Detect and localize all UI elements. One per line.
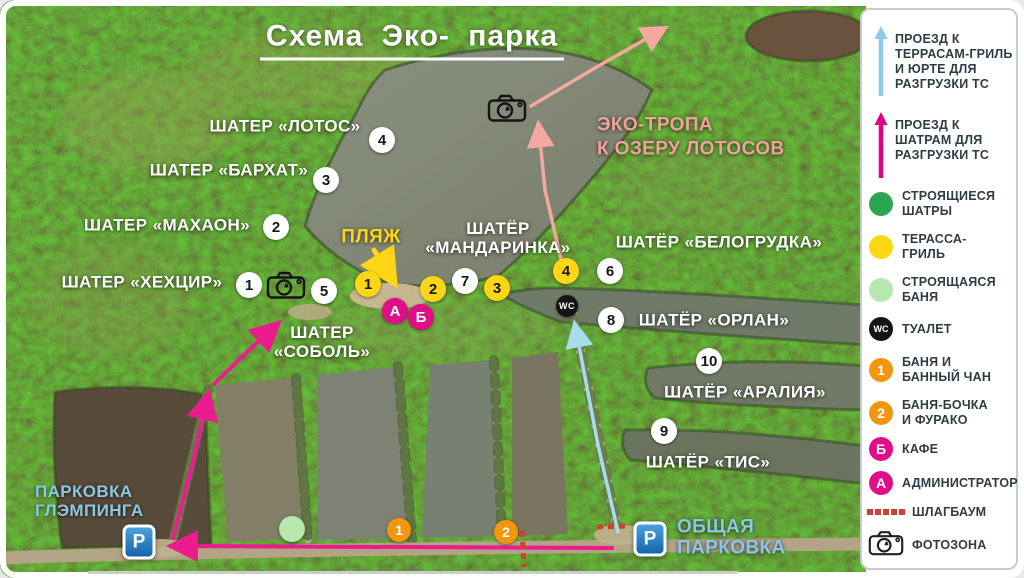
map-marker-yellow-3[interactable]: 3 [484,275,510,301]
map-marker-greenlight[interactable] [279,516,305,542]
parking-icon[interactable]: P [634,522,667,557]
camera-photozone-icon[interactable] [487,93,527,128]
legend-administrator-icon: А [869,471,893,495]
map-marker-magenta-А[interactable]: А [382,298,408,324]
bottom-divider [88,571,738,574]
map-marker-yellow-4[interactable]: 4 [553,258,579,284]
map-marker-white-10[interactable]: 10 [696,348,722,374]
map-label-lotos: ШАТЕР «ЛОТОС» [209,116,360,135]
legend-label-photo-zone: ФОТОЗОНА [912,538,986,553]
legend-barrel-sauna-furako-icon: 2 [869,401,893,425]
map-marker-white-7[interactable]: 7 [452,268,478,294]
legend-arrow-icon-drive-to-grill-terraces [874,26,888,101]
map-marker-white-4[interactable]: 4 [369,127,395,153]
legend-arrow-icon-drive-to-tents [874,112,888,183]
map-marker-orange-1[interactable]: 1 [387,518,411,542]
legend-item-administrator: ААДМИНИСТРАТОР [862,471,1016,495]
legend-grill-terrace-icon [869,235,893,259]
legend-label-barrel-sauna-furako: БАНЯ-БОЧКАИ ФУРАКО [902,398,988,428]
legend-sauna-and-tub-icon: 1 [869,358,893,382]
map-label-glamping-parking: ПАРКОВКАГЛЭМПИНГА [35,482,144,520]
legend-label-tents-under-construction: СТРОЯЩИЕСЯШАТРЫ [902,189,995,219]
legend-label-sauna-and-tub: БАНЯ ИБАННЫЙ ЧАН [902,355,991,385]
map-marker-white-3[interactable]: 3 [313,167,339,193]
map-label-orlan: ШАТЁР «ОРЛАН» [639,310,789,329]
map-marker-yellow-1[interactable]: 1 [355,271,381,297]
map-label-belogrudka: ШАТЁР «БЕЛОГРУДКА» [616,232,822,251]
camera-icon [868,529,904,561]
barrier-dash-icon [867,503,905,521]
legend-label-drive-to-tents: ПРОЕЗД КШАТРАМ ДЛЯРАЗГРУЗКИ ТС [895,118,989,163]
map-marker-white-5[interactable]: 5 [311,278,337,304]
legend-item-photo-zone: ФОТОЗОНА [862,529,1016,561]
legend-label-barrier-gate: ШЛАГБАУМ [912,505,986,520]
map-marker-magenta-Б[interactable]: Б [408,304,434,330]
legend-label-administrator: АДМИНИСТРАТОР [902,476,1018,491]
map-marker-orange-2[interactable]: 2 [494,520,518,544]
legend-label-cafe: КАФЕ [902,442,938,457]
map-label-sobol: ШАТЕР«СОБОЛЬ» [274,323,370,361]
map-marker-white-9[interactable]: 9 [651,418,677,444]
map-label-tis: ШАТЁР «ТИС» [646,452,771,471]
legend-label-toilet: ТУАЛЕТ [902,322,952,337]
legend-item-barrier-gate: ШЛАГБАУМ [862,503,1016,521]
map-label-mandarinka: ШАТЁР«МАНДАРИНКА» [425,219,570,257]
map-marker-white-8[interactable]: 8 [598,307,624,333]
legend-item-toilet: WCТУАЛЕТ [862,317,1016,341]
map-label-araliya: ШАТЁР «АРАЛИЯ» [664,382,826,401]
legend-item-sauna-and-tub: 1БАНЯ ИБАННЫЙ ЧАН [862,355,1016,385]
legend-item-tents-under-construction: СТРОЯЩИЕСЯШАТРЫ [862,189,1016,219]
map-marker-wc-WC[interactable]: WC [556,295,578,317]
map-label-public-parking: ОБЩАЯПАРКОВКА [677,517,786,560]
map-label-plyazh: ПЛЯЖ [341,226,400,247]
map-marker-yellow-2[interactable]: 2 [420,276,446,302]
map-label-mahaon: ШАТЕР «МАХАОН» [84,215,250,234]
eco-park-map-screenshot: ШАТЕР «ЛОТОС»ШАТЕР «БАРХАТ»ШАТЕР «МАХАОН… [0,0,1024,578]
legend-toilet-icon: WC [869,317,893,341]
legend-tents-under-construction-icon [869,192,893,216]
legend-panel: ПРОЕЗД КТЕРРАСАМ-ГРИЛЬИ ЮРТЕ ДЛЯРАЗГРУЗК… [860,8,1018,570]
map-label-eco-trail: ЭКО-ТРОПАК ОЗЕРУ ЛОТОСОВ [597,113,785,161]
map-label-barhat: ШАТЕР «БАРХАТ» [150,160,309,179]
legend-sauna-under-construction-icon [869,278,893,302]
legend-item-sauna-under-construction: СТРОЯЩАЯСЯБАНЯ [862,275,1016,305]
legend-label-grill-terrace: ТЕРАССА-ГРИЛЬ [902,232,966,262]
legend-item-barrel-sauna-furako: 2БАНЯ-БОЧКАИ ФУРАКО [862,398,1016,428]
camera-photozone-icon[interactable] [266,270,306,305]
map-marker-white-1[interactable]: 1 [236,272,262,298]
legend-item-grill-terrace: ТЕРАССА-ГРИЛЬ [862,232,1016,262]
map-marker-white-2[interactable]: 2 [263,214,289,240]
page-title: Схема Эко- парка [260,20,564,61]
parking-icon[interactable]: P [123,525,156,560]
map-marker-white-6[interactable]: 6 [597,258,623,284]
legend-item-cafe: БКАФЕ [862,437,1016,461]
map-overlay: ШАТЕР «ЛОТОС»ШАТЕР «БАРХАТ»ШАТЕР «МАХАОН… [0,0,866,578]
legend-label-sauna-under-construction: СТРОЯЩАЯСЯБАНЯ [902,275,996,305]
legend-cafe-icon: Б [869,437,893,461]
legend-label-drive-to-grill-terraces: ПРОЕЗД КТЕРРАСАМ-ГРИЛЬИ ЮРТЕ ДЛЯРАЗГРУЗК… [895,32,1013,92]
map-label-hehcir: ШАТЕР «ХЕХЦИР» [62,272,223,291]
